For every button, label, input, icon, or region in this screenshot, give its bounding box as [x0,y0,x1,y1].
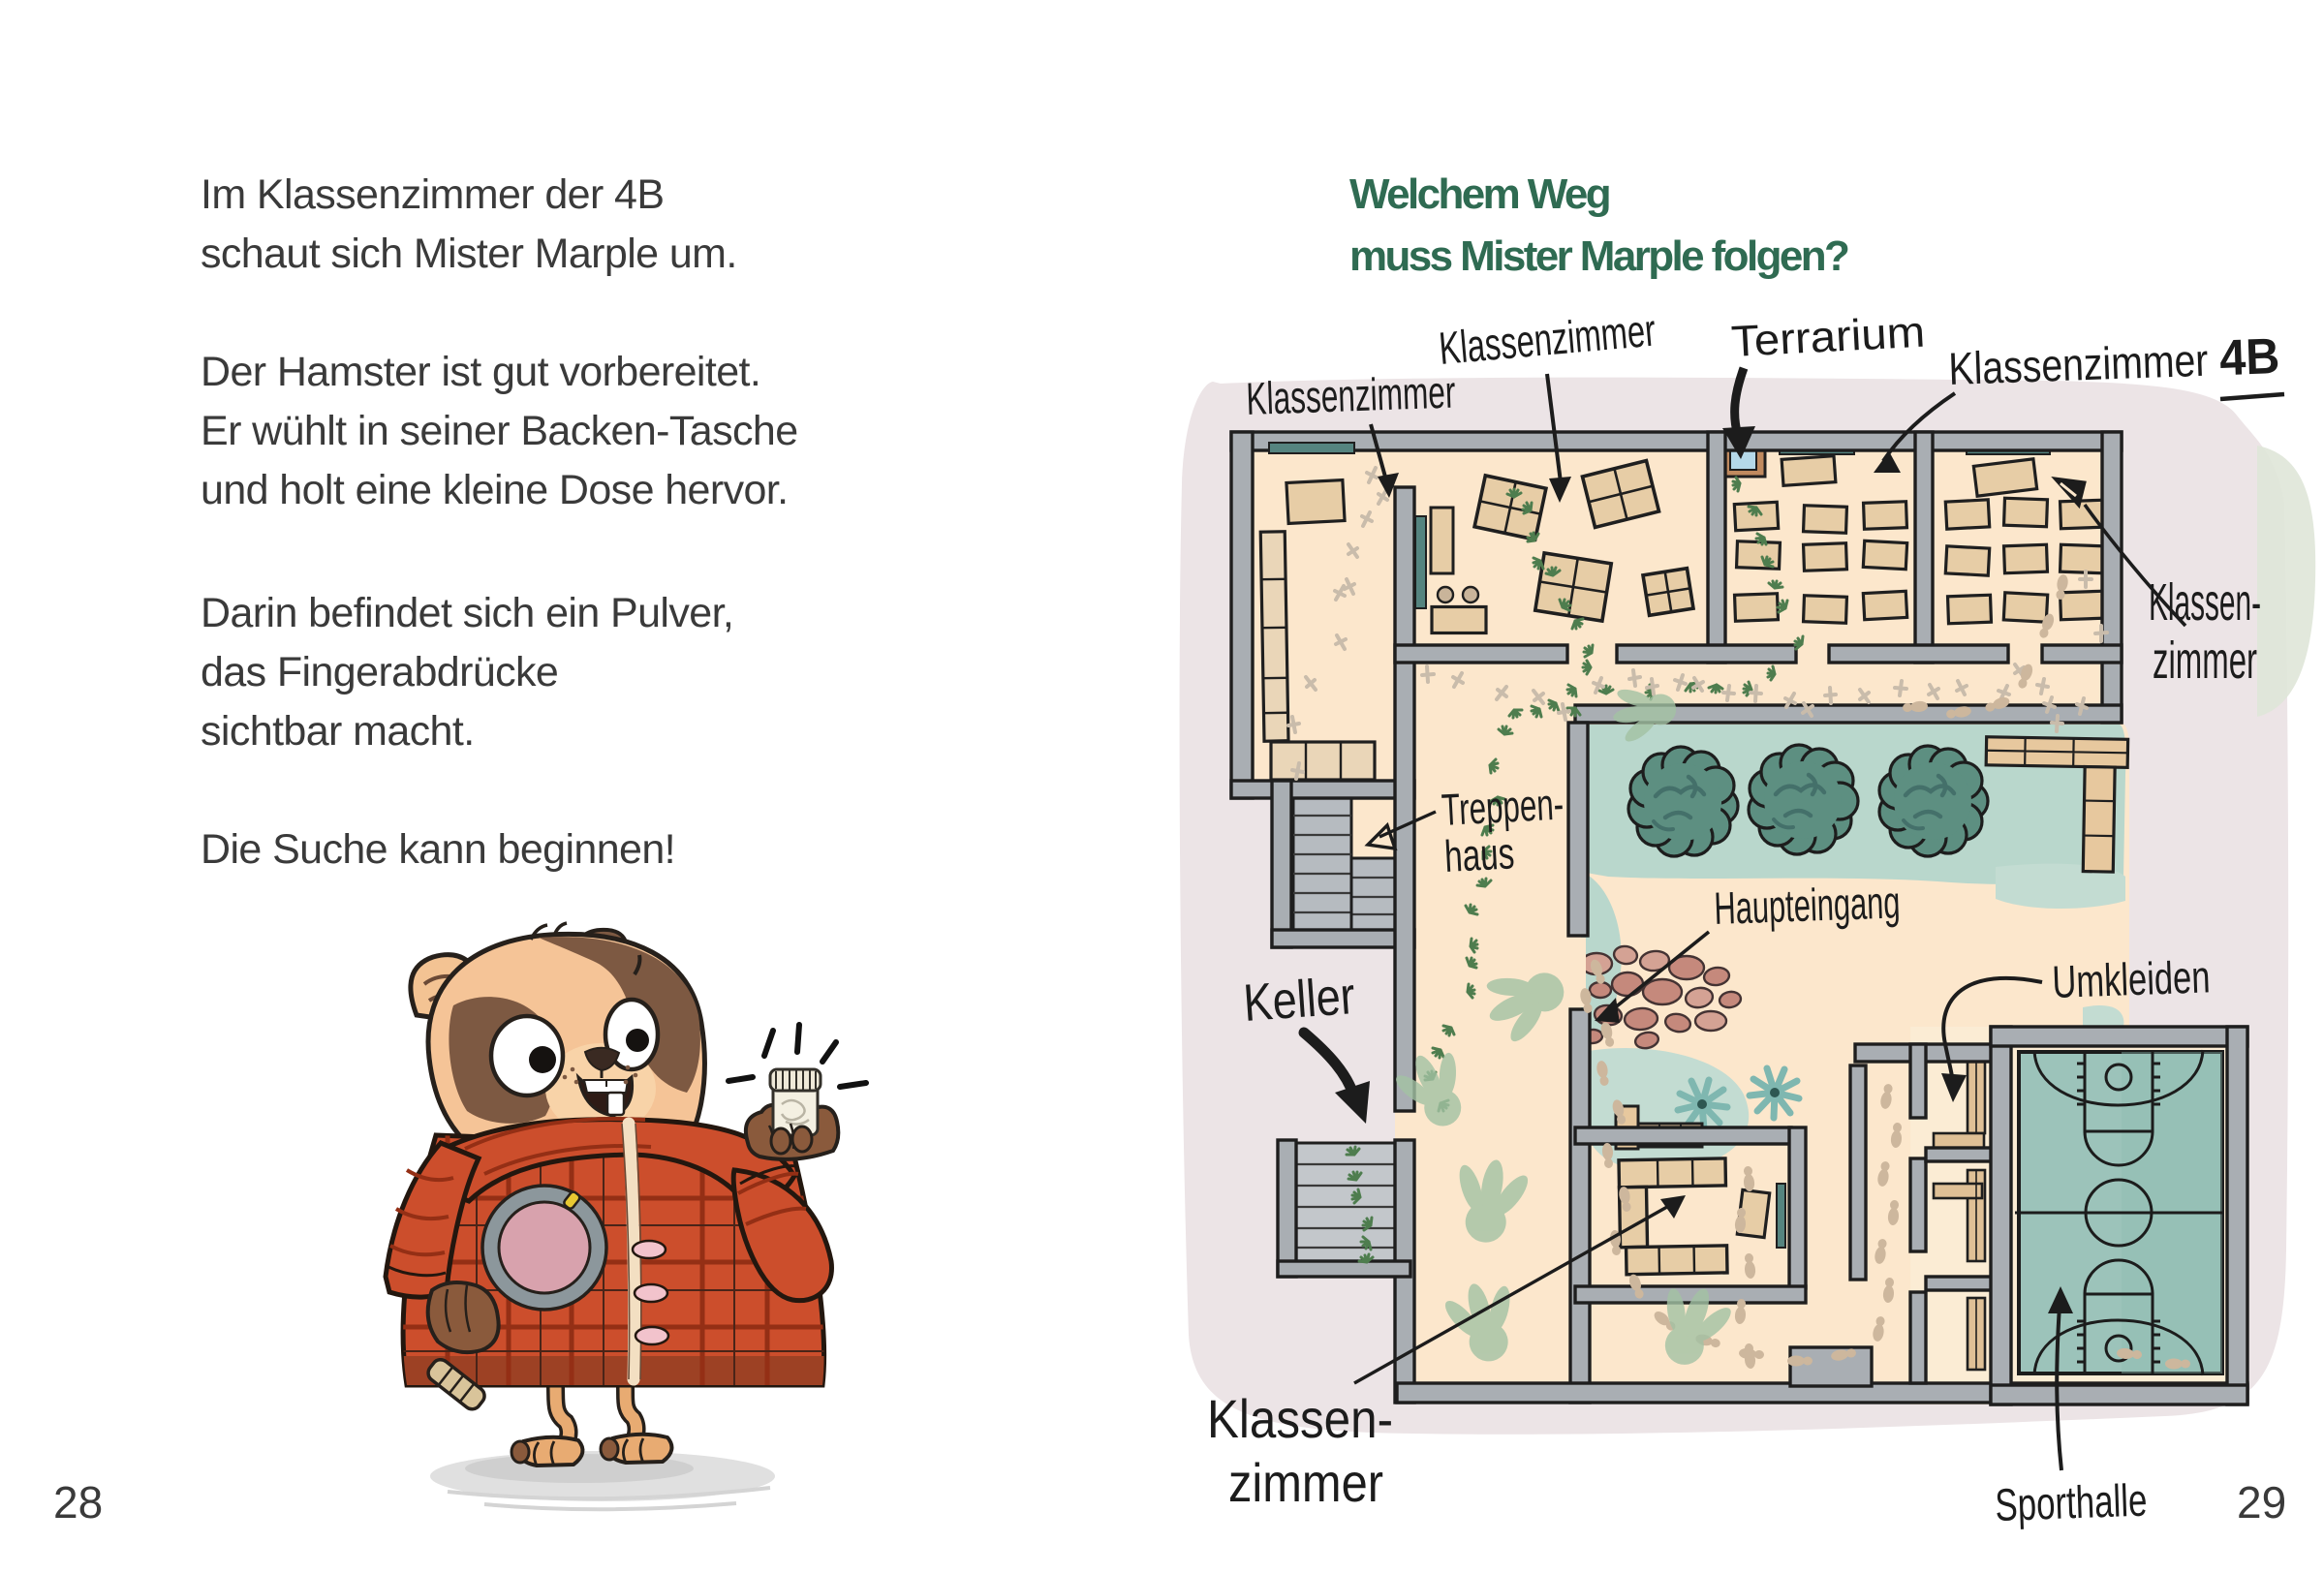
svg-text:Klassenzimmer: Klassenzimmer [1245,365,1456,424]
svg-text:Umkleiden: Umkleiden [2051,950,2211,1007]
svg-text:zimmer: zimmer [2153,632,2257,690]
svg-text:Klassenzimmer4B: Klassenzimmer4B [1947,328,2280,396]
svg-text:Klassenzimmer: Klassenzimmer [1437,304,1658,374]
svg-text:Sporthalle: Sporthalle [1994,1474,2148,1530]
svg-text:Klassen-: Klassen- [1207,1388,1393,1449]
svg-text:zimmer: zimmer [1228,1452,1383,1513]
svg-text:Treppen-: Treppen- [1441,778,1565,835]
svg-text:Haupteingang: Haupteingang [1713,876,1901,934]
svg-text:Keller: Keller [1242,967,1357,1033]
svg-text:Terrarium: Terrarium [1730,307,1926,366]
svg-text:haus: haus [1443,827,1516,881]
